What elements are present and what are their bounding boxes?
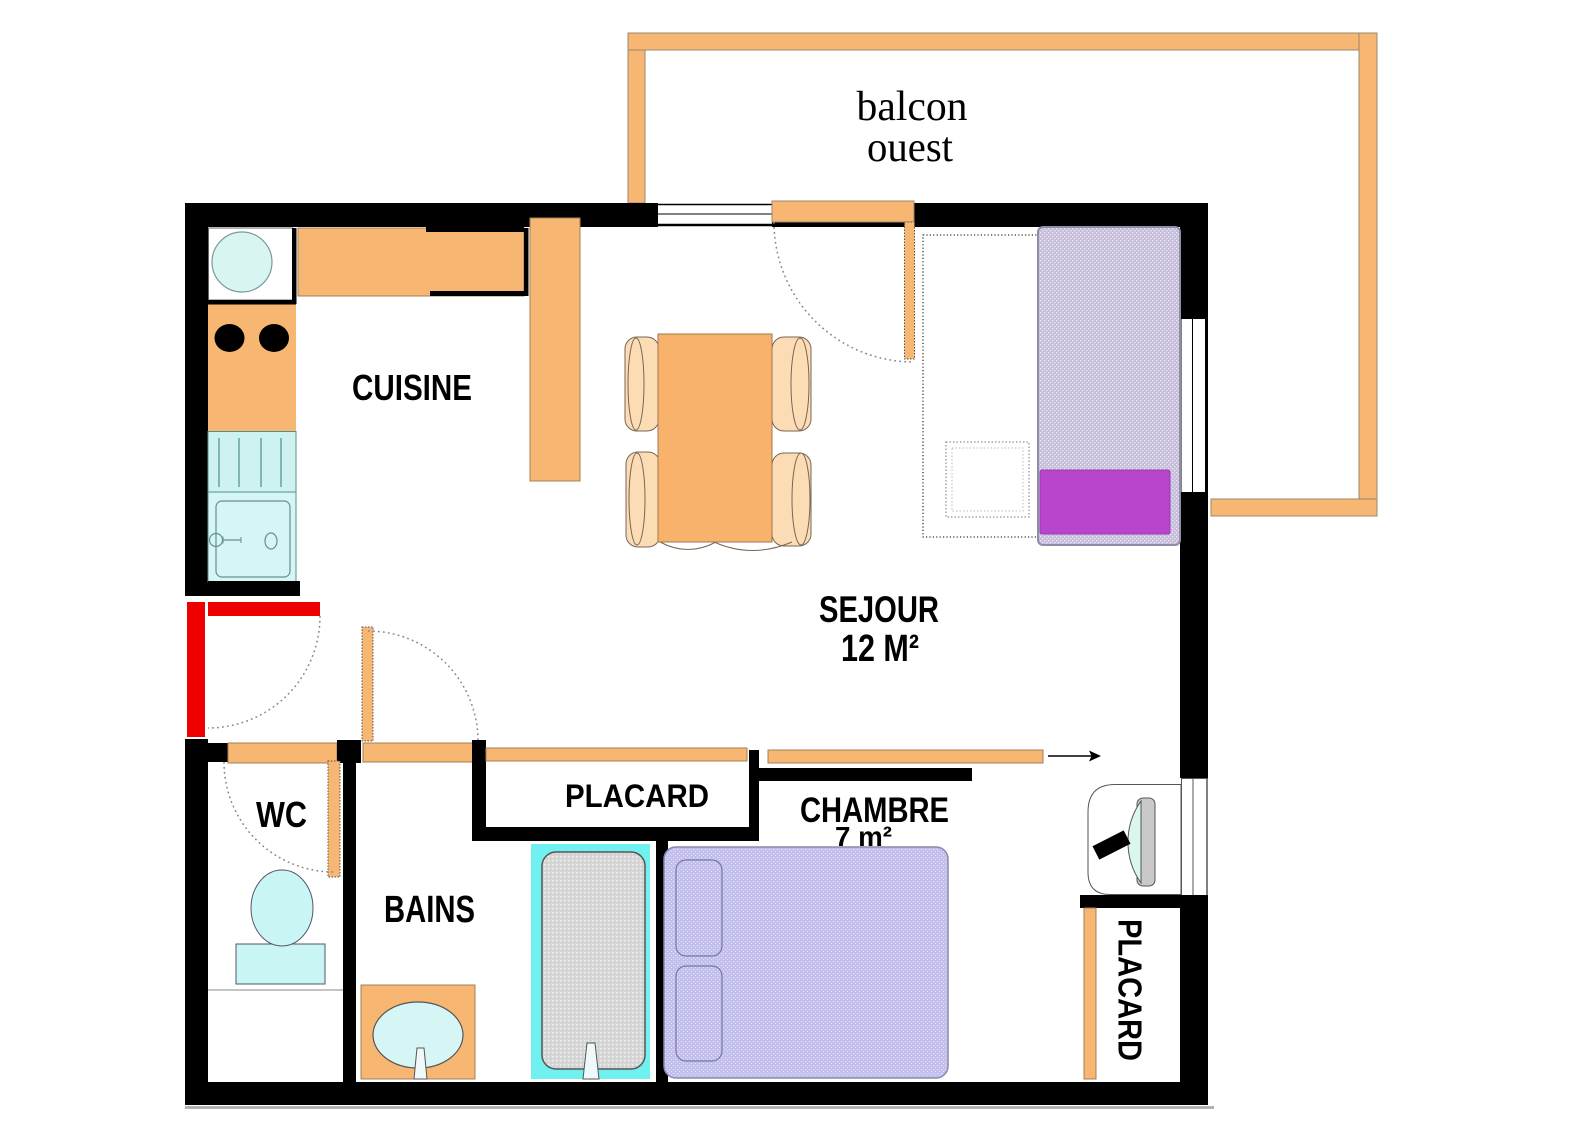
svg-text:BAINS: BAINS: [384, 889, 475, 931]
svg-text:balcon: balcon: [857, 84, 968, 130]
svg-text:PLACARD: PLACARD: [565, 778, 709, 814]
svg-text:CUISINE: CUISINE: [352, 367, 472, 408]
svg-text:WC: WC: [256, 794, 307, 835]
svg-text:SEJOUR: SEJOUR: [819, 589, 939, 630]
svg-text:ouest: ouest: [867, 125, 953, 171]
svg-text:12 M²: 12 M²: [841, 628, 919, 670]
svg-text:PLACARD: PLACARD: [1112, 919, 1149, 1061]
